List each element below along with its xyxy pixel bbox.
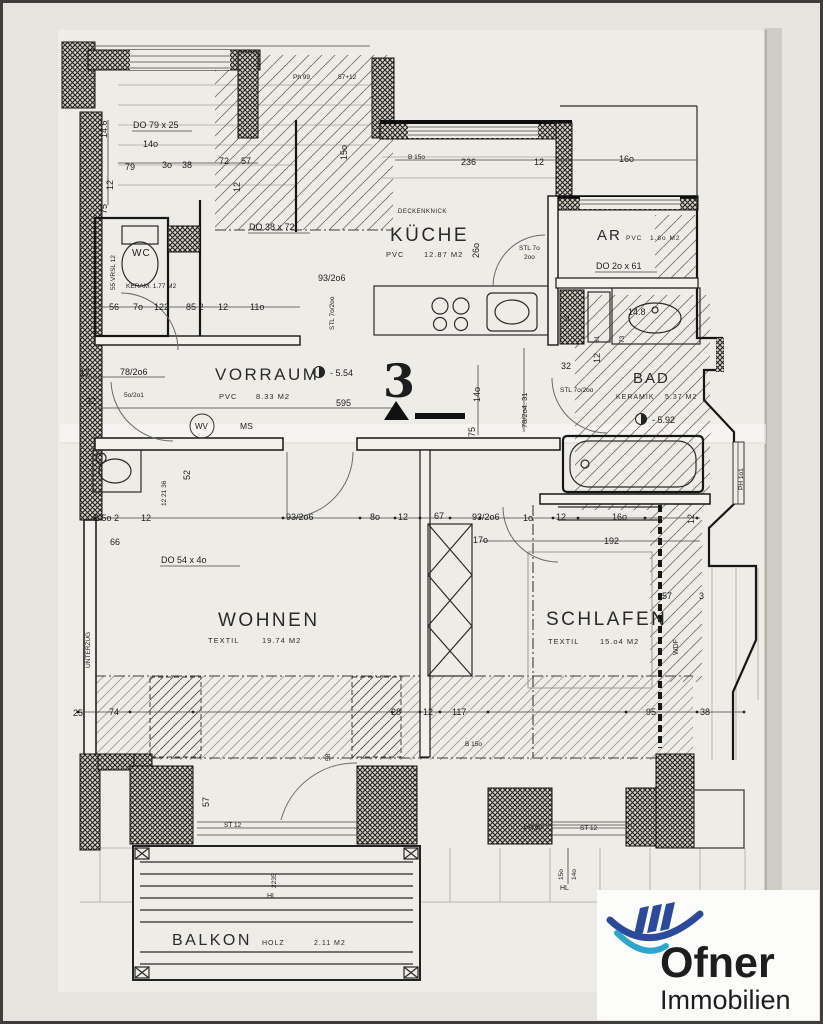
dim-label: 75 bbox=[99, 204, 109, 214]
dim-label: 67 bbox=[434, 511, 444, 521]
dim-label: STL 7o/2oo bbox=[560, 387, 594, 394]
dim-label: 93/2o6 bbox=[318, 273, 346, 283]
dim-label: 14.6 bbox=[99, 120, 109, 138]
dim-label: 12 bbox=[232, 182, 242, 192]
room-label-balkon: BALKON bbox=[172, 932, 252, 949]
dim-label: 57 bbox=[241, 156, 251, 166]
window-ar bbox=[580, 197, 680, 209]
dim-label: 26o bbox=[471, 243, 481, 258]
dim-label: 73 bbox=[619, 335, 626, 343]
room-area-kueche: 12.87 M2 bbox=[424, 250, 463, 259]
hatch-zone-ar bbox=[655, 215, 697, 287]
anno-hl: HL bbox=[267, 893, 276, 900]
room-floor-wohnen: TEXTIL bbox=[208, 636, 239, 645]
logo-brand: Ofner bbox=[660, 939, 775, 987]
dim-label: ST 12 bbox=[580, 825, 598, 832]
dim-label: 79 bbox=[125, 162, 135, 172]
dim-label: 14o bbox=[571, 869, 578, 880]
dim-label: 78/2o4. 31 bbox=[520, 393, 529, 428]
anno-deckenknick: DECKENKNICK bbox=[398, 209, 447, 215]
logo-tagline: Immobilien bbox=[660, 985, 791, 1015]
dim-label: 17o bbox=[473, 535, 488, 545]
dim-label: 93/2o6 bbox=[286, 512, 314, 522]
dim-label: 28 bbox=[391, 707, 401, 717]
dim-label: STL 7o bbox=[519, 245, 540, 252]
dim-label: PH 99 bbox=[524, 825, 542, 832]
room-area-wohnen: 19.74 M2 bbox=[262, 636, 301, 645]
dim-label: 192 bbox=[604, 536, 619, 546]
dim-label: 52 bbox=[182, 470, 192, 480]
room-floor-kueche: PVC bbox=[386, 250, 404, 259]
dim-label: 78/2o6 bbox=[120, 367, 148, 377]
dim-label: 14o bbox=[143, 139, 158, 149]
room-label-schlafen: SCHLAFEN bbox=[546, 609, 667, 630]
dim-label: 2235 bbox=[271, 873, 278, 888]
dim-label: 38 bbox=[700, 707, 710, 717]
hatch-zone-bad bbox=[575, 295, 710, 510]
dim-label: 12 bbox=[556, 512, 566, 522]
unit-number: 3 bbox=[383, 354, 415, 408]
dim-label: 15o bbox=[339, 145, 349, 160]
room-note-wc: KERAM. 1.77 M2 bbox=[126, 283, 177, 290]
room-label-bad: BAD bbox=[633, 370, 670, 387]
dim-label: 16o bbox=[619, 154, 634, 164]
door-label: DO 38 x 72 bbox=[249, 222, 295, 232]
dim-label: 32 bbox=[561, 361, 571, 371]
room-floor-bad: KERAMIK bbox=[616, 394, 655, 401]
room-label-wc: WC bbox=[132, 248, 151, 259]
dim-label: 236 bbox=[461, 157, 476, 167]
dim-label: PH 1o1 bbox=[738, 468, 745, 490]
door-label: DO 54 x 4o bbox=[161, 555, 207, 565]
dim-label: 12 bbox=[218, 302, 228, 312]
dim-label: 122 bbox=[154, 302, 169, 312]
door-label: DO 79 x 25 bbox=[133, 120, 179, 130]
dim-label: 57+12 bbox=[338, 74, 357, 81]
dim-label: 57 bbox=[201, 797, 211, 807]
dim-label: 85 2 bbox=[186, 302, 204, 312]
dim-label: 8o bbox=[370, 512, 380, 522]
level-vorraum: - 5.54 bbox=[330, 368, 353, 378]
dim-label: 25 bbox=[73, 708, 83, 718]
dim-label: 12 bbox=[564, 314, 571, 322]
dim-label: 12 bbox=[105, 180, 115, 190]
dim-label: 12 21 36 bbox=[161, 480, 168, 506]
dim-label: 12 bbox=[592, 353, 602, 363]
balcony-deck bbox=[133, 846, 420, 980]
dim-label: ST 12 bbox=[224, 822, 242, 829]
room-floor-ar: PVC bbox=[626, 235, 642, 242]
dim-label: 7o bbox=[133, 302, 143, 312]
anno-ms: MS bbox=[240, 421, 253, 431]
dim-label: 56 bbox=[109, 302, 119, 312]
dim-label: 72 bbox=[219, 156, 229, 166]
window-top-left bbox=[130, 50, 230, 70]
dim-label: B 15o bbox=[408, 154, 425, 161]
anno-wv: WV bbox=[195, 422, 209, 431]
anno-wdf: WDF bbox=[673, 639, 680, 655]
dim-label: 2 5o 2 bbox=[94, 513, 119, 523]
dim-label: 74 bbox=[109, 707, 119, 717]
room-label-wohnen: WOHNEN bbox=[218, 610, 320, 631]
dim-label: 93/2o6 bbox=[472, 512, 500, 522]
floor-plan-scan: 3 - 5.54 - 5.92 VORRAUM PVC 8.33 M2 KÜCH… bbox=[0, 0, 823, 1024]
dim-label: STL 7o/2oo bbox=[329, 296, 336, 330]
room-area-ar: 1.8o M2 bbox=[650, 235, 681, 242]
dim-label: 14o bbox=[472, 387, 482, 402]
dim-label: 95 bbox=[646, 707, 656, 717]
dim-label: 55 VRSL 12 bbox=[110, 255, 117, 290]
level-bad: - 5.92 bbox=[652, 415, 675, 425]
dim-label: 3o bbox=[162, 160, 172, 170]
anno-unterzug: UNTERZUG bbox=[85, 632, 92, 668]
dim-label: 1o bbox=[523, 513, 533, 523]
room-area-balkon: 2.11 M2 bbox=[314, 940, 346, 947]
logo-panel: Ofner Immobilien bbox=[597, 890, 819, 1020]
dim-label: 11o bbox=[250, 302, 264, 312]
dim-label: 12 bbox=[398, 512, 408, 522]
dim-label: 17 bbox=[80, 368, 90, 378]
room-floor-schlafen: TEXTIL bbox=[548, 637, 579, 646]
dim-label: 32 bbox=[86, 396, 96, 406]
dim-label: 12 bbox=[534, 157, 544, 167]
dim-label: 595 bbox=[336, 398, 351, 408]
room-floor-balkon: HOLZ bbox=[262, 940, 285, 947]
dim-label: 12 bbox=[423, 707, 433, 717]
room-area-schlafen: 15.o4 M2 bbox=[600, 637, 639, 646]
dim-label: 12 bbox=[686, 514, 696, 524]
dim-label: 16o bbox=[612, 512, 627, 522]
dim-label: 38 bbox=[182, 160, 192, 170]
room-area-bad: 5.37 M2 bbox=[665, 394, 697, 401]
dim-label: 14.8 bbox=[628, 307, 646, 317]
room-floor-vorraum: PVC bbox=[219, 392, 237, 401]
dim-label: 5o/2o1 bbox=[124, 392, 144, 399]
door-label: DO 2o x 61 bbox=[596, 261, 642, 271]
dim-label: 117 bbox=[452, 707, 466, 717]
dim-label: 61 bbox=[594, 335, 601, 343]
room-label-vorraum: VORRAUM bbox=[215, 365, 319, 384]
dim-label: 2oo bbox=[524, 254, 535, 261]
dim-label: 66 bbox=[110, 537, 120, 547]
dim-label: 3 bbox=[699, 591, 704, 601]
dim-label: B 15o bbox=[465, 741, 482, 748]
dim-label: 75 bbox=[467, 427, 477, 437]
room-label-ar: AR bbox=[597, 227, 622, 244]
dim-label: 57 bbox=[662, 591, 672, 601]
dim-label: 15o bbox=[558, 869, 565, 880]
dim-label: 58 bbox=[325, 753, 332, 761]
dim-label: 12 bbox=[141, 513, 151, 523]
dim-label: Ph 99 bbox=[293, 74, 310, 81]
room-label-kueche: KÜCHE bbox=[390, 225, 469, 246]
anno-hl: HL bbox=[560, 885, 569, 892]
room-area-vorraum: 8.33 M2 bbox=[256, 392, 290, 401]
